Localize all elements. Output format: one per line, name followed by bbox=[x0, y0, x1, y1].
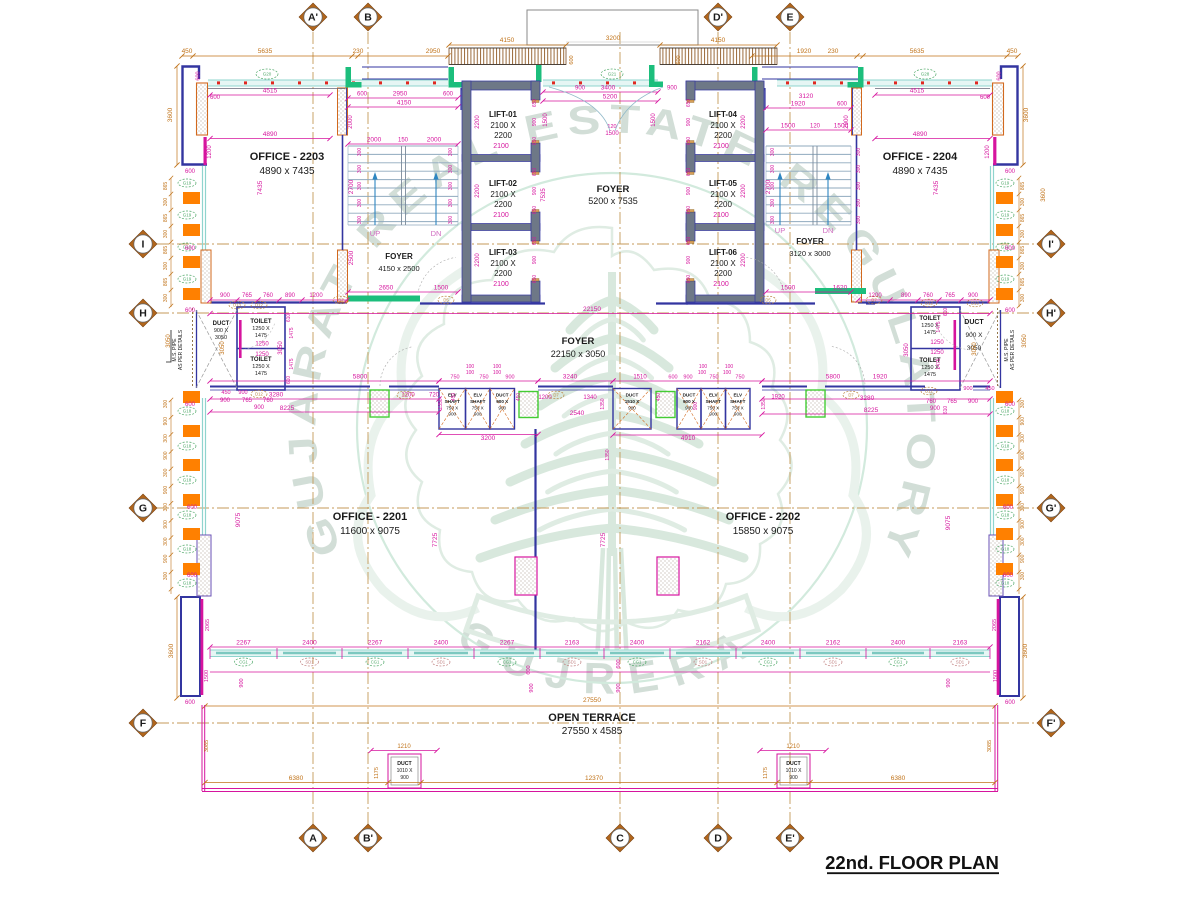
svg-text:890: 890 bbox=[901, 293, 912, 299]
svg-text:650: 650 bbox=[532, 206, 538, 215]
svg-text:2100: 2100 bbox=[493, 143, 509, 150]
svg-text:900: 900 bbox=[963, 386, 972, 392]
svg-text:G18: G18 bbox=[1001, 444, 1010, 449]
svg-text:1475: 1475 bbox=[924, 372, 936, 378]
svg-text:230: 230 bbox=[828, 48, 839, 55]
svg-text:27550 x 4585: 27550 x 4585 bbox=[562, 726, 623, 737]
svg-text:3600: 3600 bbox=[168, 643, 175, 658]
svg-text:D13: D13 bbox=[971, 301, 979, 306]
svg-text:2100: 2100 bbox=[493, 281, 509, 288]
svg-text:UP: UP bbox=[370, 229, 380, 238]
svg-text:9075: 9075 bbox=[235, 512, 242, 527]
svg-text:D12: D12 bbox=[255, 392, 263, 397]
svg-text:900: 900 bbox=[616, 683, 622, 692]
svg-text:3085: 3085 bbox=[204, 740, 210, 752]
svg-text:TOILET: TOILET bbox=[250, 357, 272, 363]
svg-text:D12: D12 bbox=[925, 389, 933, 394]
svg-text:650: 650 bbox=[532, 137, 538, 146]
svg-text:2100 X: 2100 X bbox=[710, 259, 736, 268]
svg-text:2200: 2200 bbox=[494, 200, 512, 209]
svg-text:7725: 7725 bbox=[600, 532, 607, 547]
svg-text:3050: 3050 bbox=[278, 341, 284, 355]
svg-text:650: 650 bbox=[532, 168, 538, 177]
svg-text:SD1: SD1 bbox=[956, 660, 965, 665]
svg-text:2267: 2267 bbox=[500, 640, 515, 647]
svg-text:1500: 1500 bbox=[204, 670, 210, 682]
svg-text:7535: 7535 bbox=[541, 188, 547, 202]
svg-text:300: 300 bbox=[163, 537, 169, 546]
svg-text:865: 865 bbox=[163, 278, 169, 287]
svg-text:SHAFT: SHAFT bbox=[706, 399, 722, 404]
svg-text:SD1: SD1 bbox=[829, 660, 838, 665]
svg-text:900 X: 900 X bbox=[966, 332, 984, 339]
svg-text:2100 X: 2100 X bbox=[490, 190, 516, 199]
svg-text:DUCT: DUCT bbox=[397, 761, 412, 767]
svg-text:SD1: SD1 bbox=[699, 660, 708, 665]
svg-text:720: 720 bbox=[429, 393, 440, 399]
svg-text:3120 x 3000: 3120 x 3000 bbox=[789, 249, 830, 258]
svg-text:B': B' bbox=[363, 833, 373, 845]
svg-text:1475: 1475 bbox=[936, 358, 942, 369]
svg-text:2267: 2267 bbox=[236, 640, 251, 647]
svg-text:900: 900 bbox=[532, 256, 538, 265]
svg-text:2100 X: 2100 X bbox=[490, 121, 516, 130]
svg-text:G19: G19 bbox=[1001, 277, 1010, 282]
svg-text:DUCT: DUCT bbox=[496, 393, 509, 398]
svg-text:I': I' bbox=[1048, 239, 1053, 251]
svg-text:2540: 2540 bbox=[570, 410, 585, 417]
svg-text:D7: D7 bbox=[553, 393, 559, 398]
svg-text:D7: D7 bbox=[402, 393, 408, 398]
svg-text:865: 865 bbox=[1020, 182, 1026, 191]
svg-text:3120: 3120 bbox=[799, 93, 814, 100]
svg-text:900: 900 bbox=[686, 187, 692, 196]
svg-text:2700: 2700 bbox=[348, 179, 355, 194]
svg-text:G18: G18 bbox=[1001, 547, 1010, 552]
svg-text:7435: 7435 bbox=[257, 180, 264, 195]
svg-text:8225: 8225 bbox=[864, 407, 879, 414]
svg-text:900: 900 bbox=[575, 86, 586, 92]
svg-text:100: 100 bbox=[723, 370, 732, 376]
svg-text:2200: 2200 bbox=[475, 184, 481, 198]
svg-text:SD1: SD1 bbox=[305, 660, 314, 665]
svg-text:D5: D5 bbox=[443, 298, 449, 303]
svg-text:600: 600 bbox=[185, 308, 196, 314]
svg-text:D7: D7 bbox=[871, 298, 877, 303]
svg-text:600: 600 bbox=[187, 505, 198, 511]
svg-text:LIFT-05: LIFT-05 bbox=[709, 179, 738, 188]
svg-text:1200: 1200 bbox=[207, 145, 213, 159]
svg-text:300: 300 bbox=[770, 216, 776, 225]
svg-text:300: 300 bbox=[357, 148, 363, 157]
svg-text:765: 765 bbox=[945, 293, 956, 299]
svg-text:610: 610 bbox=[943, 406, 949, 415]
svg-text:900 X: 900 X bbox=[214, 328, 229, 334]
svg-text:1475: 1475 bbox=[289, 327, 295, 338]
svg-text:120: 120 bbox=[810, 124, 821, 130]
svg-text:2200: 2200 bbox=[714, 269, 732, 278]
svg-text:865: 865 bbox=[163, 246, 169, 255]
svg-text:865: 865 bbox=[163, 182, 169, 191]
svg-text:300: 300 bbox=[163, 294, 169, 303]
svg-text:865: 865 bbox=[163, 214, 169, 223]
svg-text:2100 X: 2100 X bbox=[710, 121, 736, 130]
svg-text:650: 650 bbox=[532, 237, 538, 246]
svg-text:AS PER DETAILS: AS PER DETAILS bbox=[1010, 329, 1016, 370]
svg-text:FOYER: FOYER bbox=[562, 336, 595, 347]
svg-text:300: 300 bbox=[163, 230, 169, 239]
svg-text:300: 300 bbox=[1020, 262, 1026, 271]
svg-text:H': H' bbox=[1046, 308, 1056, 320]
svg-text:900: 900 bbox=[968, 399, 979, 405]
svg-text:1500: 1500 bbox=[781, 123, 796, 130]
svg-text:3050: 3050 bbox=[215, 335, 227, 341]
svg-text:1350: 1350 bbox=[438, 398, 444, 409]
svg-text:450: 450 bbox=[985, 386, 994, 392]
svg-text:1250 X: 1250 X bbox=[252, 364, 270, 370]
svg-text:3200: 3200 bbox=[481, 435, 496, 442]
svg-text:G19: G19 bbox=[1001, 213, 1010, 218]
svg-text:150: 150 bbox=[398, 138, 409, 144]
svg-text:5200: 5200 bbox=[603, 94, 618, 101]
svg-text:300: 300 bbox=[1020, 294, 1026, 303]
svg-text:22150 x 3050: 22150 x 3050 bbox=[551, 349, 606, 359]
svg-text:DUCT: DUCT bbox=[683, 393, 696, 398]
svg-text:E: E bbox=[786, 12, 793, 24]
svg-text:1475: 1475 bbox=[924, 330, 936, 336]
svg-text:7725: 7725 bbox=[432, 532, 439, 547]
svg-text:A': A' bbox=[308, 12, 318, 24]
svg-text:900: 900 bbox=[400, 775, 409, 781]
svg-text:2100: 2100 bbox=[713, 143, 729, 150]
svg-text:300: 300 bbox=[163, 400, 169, 409]
svg-text:LIFT-04: LIFT-04 bbox=[709, 110, 738, 119]
svg-text:100: 100 bbox=[493, 370, 502, 376]
svg-text:300: 300 bbox=[163, 262, 169, 271]
svg-text:300: 300 bbox=[1020, 198, 1026, 207]
svg-text:750 X: 750 X bbox=[707, 405, 719, 410]
svg-text:27550: 27550 bbox=[583, 697, 601, 704]
svg-text:650: 650 bbox=[532, 99, 538, 108]
svg-text:300: 300 bbox=[1020, 503, 1026, 512]
svg-text:G18: G18 bbox=[183, 513, 192, 518]
svg-text:760: 760 bbox=[923, 293, 934, 299]
svg-text:UP: UP bbox=[775, 226, 785, 235]
svg-text:4890: 4890 bbox=[913, 131, 928, 138]
svg-text:3050: 3050 bbox=[972, 342, 978, 356]
svg-text:3085: 3085 bbox=[987, 740, 993, 752]
svg-text:100: 100 bbox=[466, 364, 475, 370]
svg-text:4910: 4910 bbox=[681, 435, 696, 442]
svg-text:FOYER: FOYER bbox=[796, 237, 824, 246]
svg-text:2950: 2950 bbox=[393, 91, 408, 98]
svg-text:900: 900 bbox=[628, 405, 636, 410]
svg-text:650: 650 bbox=[686, 275, 692, 284]
svg-text:5635: 5635 bbox=[258, 48, 273, 55]
svg-text:900: 900 bbox=[474, 412, 482, 417]
svg-text:SD1: SD1 bbox=[437, 660, 446, 665]
svg-text:G21: G21 bbox=[608, 72, 617, 77]
svg-text:600: 600 bbox=[837, 102, 848, 108]
svg-text:890: 890 bbox=[285, 293, 296, 299]
svg-text:1920: 1920 bbox=[873, 374, 888, 381]
svg-text:1010 X: 1010 X bbox=[786, 768, 803, 774]
svg-text:OFFICE - 2204: OFFICE - 2204 bbox=[883, 151, 958, 163]
svg-text:300: 300 bbox=[856, 148, 862, 157]
svg-text:OFFICE - 2202: OFFICE - 2202 bbox=[726, 511, 801, 523]
svg-text:5800: 5800 bbox=[826, 374, 841, 381]
svg-text:600: 600 bbox=[185, 402, 196, 408]
svg-text:600: 600 bbox=[443, 92, 454, 98]
svg-text:600: 600 bbox=[676, 55, 682, 64]
svg-text:650: 650 bbox=[686, 137, 692, 146]
svg-text:D5: D5 bbox=[765, 298, 771, 303]
svg-text:600: 600 bbox=[668, 375, 677, 381]
svg-text:B: B bbox=[364, 12, 372, 24]
svg-text:C: C bbox=[616, 833, 624, 845]
svg-text:5200 x 7535: 5200 x 7535 bbox=[588, 196, 638, 206]
svg-text:5800: 5800 bbox=[353, 374, 368, 381]
svg-text:G18: G18 bbox=[1001, 581, 1010, 586]
svg-text:LIFT-06: LIFT-06 bbox=[709, 248, 738, 257]
svg-text:2100 X: 2100 X bbox=[710, 190, 736, 199]
svg-text:1500: 1500 bbox=[834, 123, 849, 130]
svg-text:1500: 1500 bbox=[434, 285, 449, 292]
svg-text:450: 450 bbox=[221, 390, 230, 396]
svg-text:600: 600 bbox=[1005, 402, 1016, 408]
svg-text:450: 450 bbox=[1007, 48, 1018, 55]
svg-text:900: 900 bbox=[529, 683, 535, 692]
svg-text:750: 750 bbox=[709, 375, 718, 381]
svg-text:900: 900 bbox=[1020, 451, 1026, 460]
svg-text:900: 900 bbox=[254, 405, 265, 411]
svg-text:300: 300 bbox=[770, 199, 776, 208]
svg-text:D7: D7 bbox=[338, 298, 344, 303]
svg-text:2200: 2200 bbox=[475, 115, 481, 129]
svg-text:G18: G18 bbox=[183, 547, 192, 552]
svg-text:FOYER: FOYER bbox=[385, 252, 413, 261]
svg-text:3600: 3600 bbox=[1023, 107, 1030, 122]
svg-text:3050: 3050 bbox=[1022, 334, 1028, 348]
svg-text:4150: 4150 bbox=[500, 37, 515, 44]
svg-text:1920: 1920 bbox=[797, 48, 812, 55]
svg-text:11600 x 9075: 11600 x 9075 bbox=[340, 526, 400, 537]
svg-text:900 X: 900 X bbox=[496, 399, 509, 404]
svg-text:2065: 2065 bbox=[205, 619, 211, 631]
svg-text:4515: 4515 bbox=[263, 88, 278, 95]
svg-text:1175: 1175 bbox=[374, 767, 380, 779]
svg-text:DN: DN bbox=[431, 229, 442, 238]
svg-text:1350: 1350 bbox=[605, 449, 611, 460]
svg-text:4890 x 7435: 4890 x 7435 bbox=[892, 166, 947, 177]
svg-text:2200: 2200 bbox=[741, 184, 747, 198]
svg-text:300: 300 bbox=[357, 199, 363, 208]
svg-text:100: 100 bbox=[725, 364, 734, 370]
svg-text:SD1: SD1 bbox=[568, 660, 577, 665]
svg-text:2100 X: 2100 X bbox=[490, 259, 516, 268]
svg-text:1920: 1920 bbox=[791, 101, 806, 108]
svg-text:G18: G18 bbox=[183, 478, 192, 483]
svg-text:450: 450 bbox=[451, 393, 457, 402]
svg-text:650: 650 bbox=[686, 168, 692, 177]
svg-text:765: 765 bbox=[947, 399, 958, 405]
svg-text:900: 900 bbox=[789, 775, 798, 781]
svg-text:1250: 1250 bbox=[930, 340, 944, 346]
svg-text:1500: 1500 bbox=[543, 113, 549, 127]
svg-text:ELV: ELV bbox=[473, 393, 483, 398]
svg-text:I: I bbox=[142, 239, 145, 251]
svg-text:2100: 2100 bbox=[493, 212, 509, 219]
svg-text:D13: D13 bbox=[233, 303, 241, 308]
svg-text:2162: 2162 bbox=[696, 640, 711, 647]
svg-text:1500: 1500 bbox=[993, 670, 999, 682]
svg-text:3400: 3400 bbox=[601, 85, 616, 92]
svg-text:600: 600 bbox=[526, 665, 532, 674]
svg-text:G: G bbox=[139, 503, 147, 515]
svg-text:760: 760 bbox=[926, 399, 937, 405]
svg-text:5635: 5635 bbox=[910, 48, 925, 55]
svg-text:900: 900 bbox=[1020, 554, 1026, 563]
svg-text:900: 900 bbox=[220, 293, 231, 299]
svg-text:900: 900 bbox=[498, 405, 506, 410]
svg-text:DUCT: DUCT bbox=[964, 319, 984, 326]
svg-text:1510: 1510 bbox=[633, 375, 647, 381]
svg-text:2200: 2200 bbox=[714, 200, 732, 209]
svg-text:600: 600 bbox=[569, 55, 575, 64]
svg-text:610: 610 bbox=[943, 308, 949, 317]
svg-text:G18: G18 bbox=[183, 444, 192, 449]
svg-text:2400: 2400 bbox=[630, 640, 645, 647]
svg-text:AS PER DETAILS: AS PER DETAILS bbox=[178, 329, 184, 370]
svg-text:2200: 2200 bbox=[741, 253, 747, 267]
svg-text:SHAFT: SHAFT bbox=[470, 399, 486, 404]
svg-text:2200: 2200 bbox=[714, 131, 732, 140]
svg-text:750 X: 750 X bbox=[732, 405, 744, 410]
svg-text:760: 760 bbox=[263, 293, 274, 299]
svg-text:CG1: CG1 bbox=[503, 660, 512, 665]
svg-text:D: D bbox=[714, 833, 722, 845]
svg-text:610: 610 bbox=[286, 376, 292, 385]
svg-text:2200: 2200 bbox=[494, 269, 512, 278]
svg-text:ELV: ELV bbox=[733, 393, 743, 398]
svg-text:300: 300 bbox=[1020, 434, 1026, 443]
svg-text:900: 900 bbox=[163, 417, 169, 426]
svg-text:TOILET: TOILET bbox=[250, 319, 272, 325]
svg-text:FOYER: FOYER bbox=[597, 184, 630, 195]
svg-text:450: 450 bbox=[656, 393, 662, 402]
svg-text:865: 865 bbox=[1020, 246, 1026, 255]
svg-text:300: 300 bbox=[163, 503, 169, 512]
svg-text:1500: 1500 bbox=[605, 131, 619, 137]
svg-text:600: 600 bbox=[196, 71, 202, 80]
svg-text:300: 300 bbox=[1020, 400, 1026, 409]
svg-text:300: 300 bbox=[357, 165, 363, 174]
svg-text:300: 300 bbox=[357, 216, 363, 225]
svg-text:CG1: CG1 bbox=[371, 660, 380, 665]
svg-text:300: 300 bbox=[770, 182, 776, 191]
svg-text:1500: 1500 bbox=[651, 113, 657, 127]
svg-text:TOILET: TOILET bbox=[919, 316, 941, 322]
svg-text:600: 600 bbox=[357, 92, 368, 98]
svg-text:3600: 3600 bbox=[1041, 188, 1047, 202]
svg-text:300: 300 bbox=[1020, 537, 1026, 546]
svg-text:1250 X: 1250 X bbox=[252, 326, 270, 332]
svg-text:1200: 1200 bbox=[309, 293, 323, 299]
svg-text:750: 750 bbox=[479, 375, 488, 381]
svg-text:450: 450 bbox=[516, 393, 522, 402]
svg-text:1200: 1200 bbox=[985, 145, 991, 159]
svg-text:300: 300 bbox=[770, 148, 776, 157]
svg-text:CG1: CG1 bbox=[764, 660, 773, 665]
svg-text:865: 865 bbox=[1020, 278, 1026, 287]
svg-text:100: 100 bbox=[698, 370, 707, 376]
svg-text:6380: 6380 bbox=[289, 775, 304, 782]
svg-text:2200: 2200 bbox=[494, 131, 512, 140]
svg-text:900: 900 bbox=[532, 118, 538, 127]
svg-text:2200: 2200 bbox=[741, 115, 747, 129]
svg-text:900: 900 bbox=[686, 256, 692, 265]
svg-text:300: 300 bbox=[770, 165, 776, 174]
svg-text:2650: 2650 bbox=[379, 285, 394, 292]
svg-text:1340: 1340 bbox=[583, 395, 597, 401]
svg-text:300: 300 bbox=[448, 148, 454, 157]
svg-text:300: 300 bbox=[448, 199, 454, 208]
svg-text:900: 900 bbox=[686, 118, 692, 127]
svg-text:1475: 1475 bbox=[255, 371, 267, 377]
svg-text:230: 230 bbox=[353, 48, 364, 55]
svg-text:G': G' bbox=[1046, 503, 1057, 515]
svg-text:G28: G28 bbox=[921, 72, 930, 77]
svg-text:G19: G19 bbox=[183, 181, 192, 186]
svg-text:600: 600 bbox=[1005, 700, 1016, 706]
svg-text:100: 100 bbox=[466, 370, 475, 376]
svg-text:DN: DN bbox=[823, 226, 834, 235]
svg-text:3240: 3240 bbox=[563, 374, 578, 381]
svg-text:600: 600 bbox=[1005, 246, 1016, 252]
svg-text:600: 600 bbox=[185, 169, 196, 175]
svg-text:600: 600 bbox=[185, 700, 196, 706]
svg-text:650: 650 bbox=[686, 206, 692, 215]
svg-text:750: 750 bbox=[450, 375, 459, 381]
svg-text:1250: 1250 bbox=[255, 342, 269, 348]
svg-text:2950: 2950 bbox=[426, 48, 441, 55]
svg-text:A: A bbox=[309, 833, 317, 845]
svg-text:600: 600 bbox=[185, 246, 196, 252]
svg-text:1920: 1920 bbox=[771, 395, 785, 401]
svg-text:900: 900 bbox=[946, 678, 952, 687]
svg-text:2000: 2000 bbox=[348, 115, 354, 129]
svg-text:300: 300 bbox=[448, 165, 454, 174]
svg-text:D': D' bbox=[713, 12, 723, 24]
svg-text:900: 900 bbox=[930, 406, 941, 412]
svg-text:900: 900 bbox=[968, 293, 979, 299]
svg-text:650: 650 bbox=[686, 237, 692, 246]
svg-text:600: 600 bbox=[210, 95, 221, 101]
svg-text:900: 900 bbox=[239, 678, 245, 687]
svg-text:300: 300 bbox=[357, 182, 363, 191]
svg-text:450: 450 bbox=[182, 48, 193, 55]
svg-text:600: 600 bbox=[187, 573, 198, 579]
svg-text:CG1: CG1 bbox=[239, 660, 248, 665]
svg-text:CG1: CG1 bbox=[894, 660, 903, 665]
svg-text:7435: 7435 bbox=[933, 180, 940, 195]
svg-text:G18: G18 bbox=[183, 409, 192, 414]
svg-text:LIFT-03: LIFT-03 bbox=[489, 248, 518, 257]
svg-text:900: 900 bbox=[163, 554, 169, 563]
svg-text:300: 300 bbox=[856, 199, 862, 208]
svg-text:300: 300 bbox=[856, 165, 862, 174]
svg-text:DUCT: DUCT bbox=[213, 321, 230, 327]
